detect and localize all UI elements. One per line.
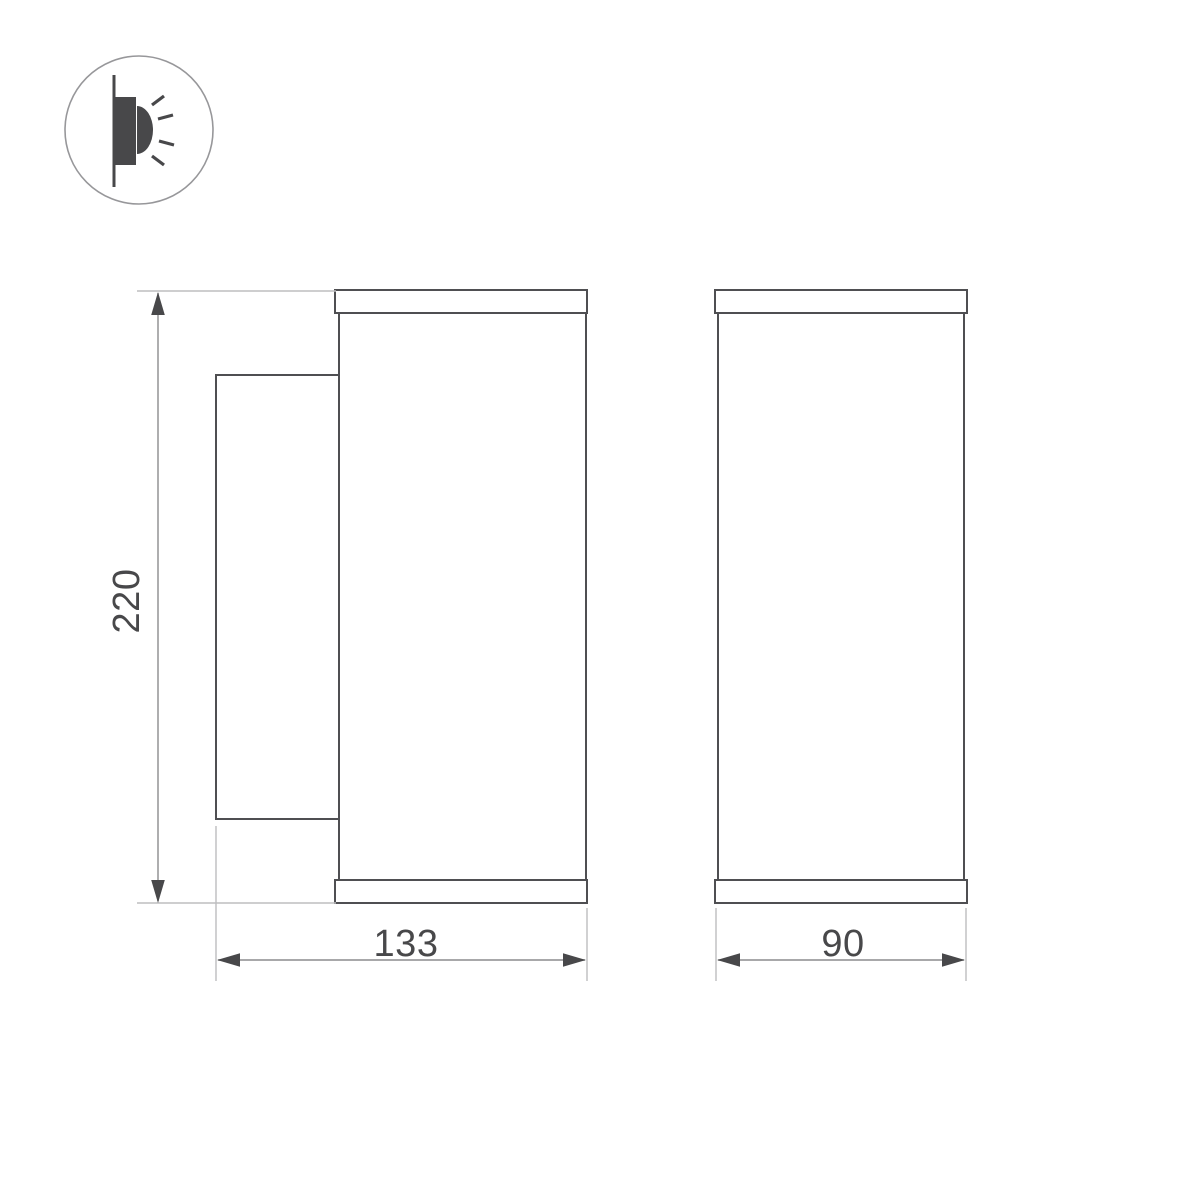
width-dimension-label: 90	[821, 923, 864, 965]
technical-drawing-canvas: 220 133 90	[0, 0, 1200, 1200]
light-ray-icon	[152, 156, 164, 165]
side-view	[216, 290, 587, 903]
arrow-right-icon	[563, 953, 586, 967]
fixture-body-glyph	[114, 97, 136, 165]
height-dimension: 220	[106, 291, 336, 903]
depth-dimension-label: 133	[374, 923, 439, 965]
height-dimension-label: 220	[106, 569, 148, 634]
light-ray-icon	[152, 96, 164, 105]
light-ray-icon	[158, 115, 173, 119]
side-view-body	[339, 313, 586, 880]
light-ray-icon	[159, 141, 174, 145]
side-view-wall-plate	[216, 375, 339, 819]
front-view-body	[718, 313, 964, 880]
wall-mount-light-icon	[65, 56, 213, 204]
side-view-top-cap	[335, 290, 587, 313]
side-view-bottom-cap	[335, 880, 587, 903]
front-view	[715, 290, 967, 903]
arrow-down-icon	[151, 880, 165, 903]
front-view-top-cap	[715, 290, 967, 313]
arrow-left-icon	[717, 953, 740, 967]
front-view-bottom-cap	[715, 880, 967, 903]
arrow-left-icon	[217, 953, 240, 967]
arrow-up-icon	[151, 292, 165, 315]
arrow-right-icon	[942, 953, 965, 967]
technical-drawing-page: 220 133 90	[0, 0, 1200, 1200]
light-dome-glyph	[137, 106, 153, 154]
width-dimension: 90	[716, 908, 966, 981]
